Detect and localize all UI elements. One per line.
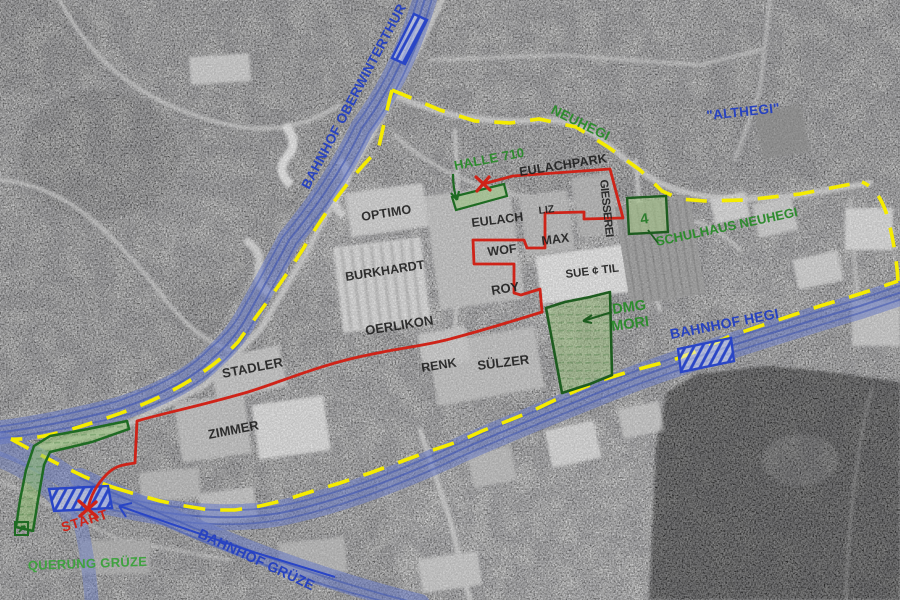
svg-text:LIZ: LIZ (538, 203, 556, 217)
